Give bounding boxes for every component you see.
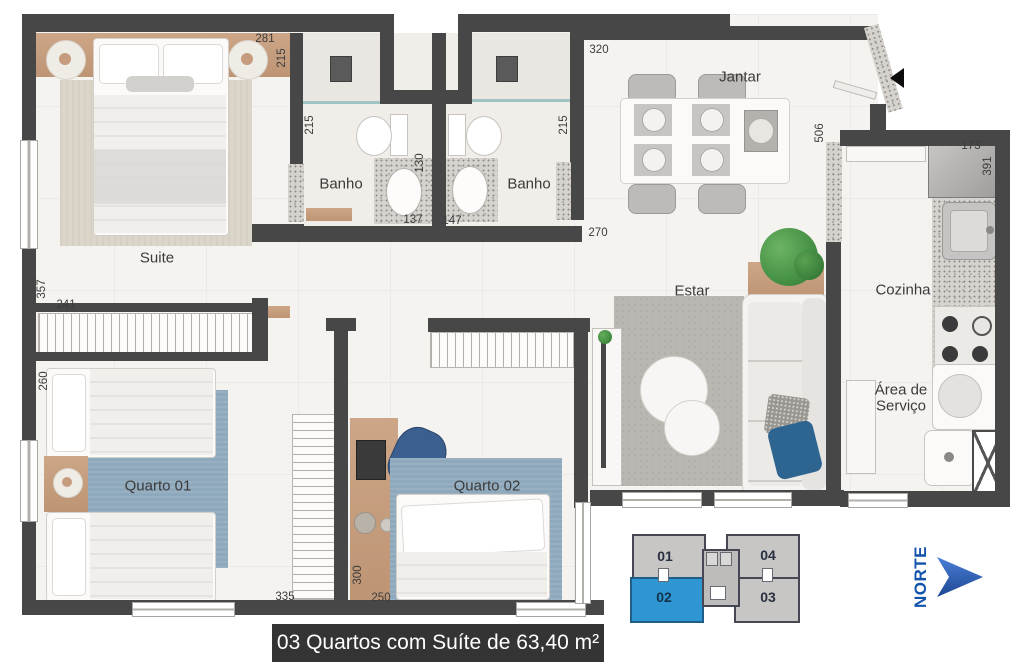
suite-lamp-right-bulb (241, 53, 253, 65)
banho2-sink (452, 166, 488, 214)
north-arrow-icon (933, 551, 987, 603)
label-banho1: Banho (319, 176, 362, 193)
quarto2-pillow (401, 498, 546, 557)
service-cabinet (846, 380, 876, 474)
threshold-banho2-door (556, 162, 571, 220)
keyplan-door-01 (658, 568, 669, 582)
window-quarto1-side (20, 440, 38, 522)
quarto2-desk-item-1 (354, 512, 376, 534)
dim-banho1-side: 215 (304, 115, 316, 134)
dining-chair-3 (628, 184, 676, 214)
dim-banho1-inner: 130 (414, 153, 426, 172)
dim-jantar-top: 320 (589, 44, 608, 56)
north-label: NORTE (911, 546, 931, 608)
quarto2-blanket (397, 552, 547, 597)
burner-1 (942, 316, 958, 332)
window-suite (20, 140, 38, 249)
dim-jantar-side: 506 (814, 123, 826, 142)
label-suite: Suite (140, 250, 174, 267)
window-estar-2 (714, 492, 792, 508)
dim-suite-headboard: 281 (255, 33, 274, 45)
label-estar: Estar (674, 283, 709, 300)
plant-large-leaf (794, 250, 824, 280)
wall-banho2-right (570, 18, 584, 220)
dim-quarto2-bottom: 250 (371, 592, 390, 604)
plate-1 (642, 108, 666, 132)
coffee-table-small (664, 400, 720, 456)
dim-banho1-width: 137 (403, 214, 422, 226)
banho1-toilet-tank (390, 114, 408, 156)
quarto1-bed2-pillow (52, 518, 86, 596)
entrance-arrow-icon (890, 68, 904, 88)
quarto1-lamp-bulb (62, 477, 72, 487)
tank-faucet (944, 452, 954, 462)
banho1-door-leaf (306, 208, 352, 221)
dim-banho2-side: 215 (558, 115, 570, 134)
quarto1-closet (38, 313, 254, 354)
keyplan-elevator-2 (720, 552, 732, 566)
wall-kitchen-left (826, 240, 841, 506)
wall-quarto-split-cap (326, 318, 356, 331)
label-area-servico-1: Área de (875, 382, 928, 399)
wall-top-left (22, 14, 394, 32)
suite-lamp-left-bulb (59, 53, 71, 65)
tv-rack-plant (598, 330, 612, 344)
banho2-toilet-bowl (466, 116, 502, 156)
label-banho2: Banho (507, 176, 550, 193)
wall-suite-right (290, 33, 303, 165)
keyplan-elevator-1 (706, 552, 718, 566)
label-cozinha: Cozinha (875, 282, 930, 299)
floor-plan-canvas: Suite Banho Banho Jantar Cozinha Área de… (0, 0, 1026, 669)
dim-quarto2-desk: 300 (352, 565, 364, 584)
banho2-toilet-tank (448, 114, 466, 156)
wall-closet-right (252, 298, 268, 360)
wall-jantar-top-b (728, 26, 878, 40)
banho2-shower (468, 33, 570, 101)
caption-text: 03 Quartos com Suíte de 63,40 m² (277, 631, 599, 655)
plate-4 (700, 148, 724, 172)
dim-suite-left: 357 (36, 279, 48, 298)
dim-quarto1-bottom: 335 (275, 591, 294, 603)
label-jantar: Jantar (719, 69, 761, 86)
threshold-suite-door (288, 164, 304, 222)
quarto1-bed1-blanket (90, 369, 213, 455)
window-quarto1-bottom (132, 602, 235, 617)
plate-2 (700, 108, 724, 132)
banho2-shower-glass (468, 99, 570, 102)
banho1-toilet-bowl (356, 116, 392, 156)
dim-banho2-width: 147 (442, 215, 461, 227)
keyplan-door-04 (762, 568, 773, 582)
wall-top-mid (458, 14, 582, 32)
wall-jantar-top-a (570, 14, 730, 40)
dim-fridge-width: 173 (961, 140, 980, 152)
window-quarto2-bottom (516, 602, 586, 617)
quarto1-wardrobe (292, 414, 338, 600)
kitchen-halfwall (826, 142, 842, 242)
wall-kitchen-top (840, 130, 1010, 146)
wall-banho-split (432, 33, 446, 229)
quarto1-bed2-blanket (90, 513, 213, 599)
tv-panel (601, 342, 606, 468)
dining-chair-4 (698, 184, 746, 214)
banho1-sink (386, 168, 422, 216)
dim-hall-opening: 270 (588, 227, 607, 239)
keyplan-label-02: 02 (656, 589, 672, 605)
caption-bar: 03 Quartos com Suíte de 63,40 m² (272, 624, 604, 662)
wall-quarto2-top (428, 318, 590, 332)
washing-machine-door (938, 374, 982, 418)
window-service (848, 493, 908, 508)
wall-closet-bottom (28, 352, 268, 361)
kitchen-upper-cabinet (846, 146, 926, 162)
kitchen-faucet (986, 226, 994, 234)
keyplan-label-01: 01 (657, 548, 673, 564)
burner-2 (972, 316, 992, 336)
wall-right-outer (995, 138, 1010, 507)
burner-4 (972, 346, 988, 362)
suite-lumbar-pillow (126, 76, 194, 92)
dim-closet-width: 241 (56, 299, 75, 311)
dim-suite-side: 215 (276, 48, 288, 67)
tv-rack (592, 328, 622, 486)
keyplan-label-03: 03 (760, 589, 776, 605)
plate-3 (642, 148, 666, 172)
quarto2-laptop (356, 440, 386, 480)
window-estar-1 (622, 492, 702, 508)
label-quarto2: Quarto 02 (454, 478, 521, 495)
burner-3 (942, 346, 958, 362)
dim-quarto1-left: 260 (38, 371, 50, 390)
window-quarto2-right (575, 502, 591, 604)
keyplan-stairs (710, 586, 726, 600)
serving-dish (748, 118, 774, 144)
keyplan-label-04: 04 (760, 547, 776, 563)
dim-cozinha-side: 391 (982, 156, 994, 175)
wall-hall-top (252, 226, 582, 242)
banho1-shower-glass (303, 101, 385, 104)
banho1-shower-fixture (330, 56, 352, 82)
outside-top-right (878, 0, 1026, 130)
kitchen-sink-basin (950, 210, 988, 252)
label-area-servico-2: Serviço (876, 398, 926, 415)
wall-quarto2-right (574, 318, 588, 508)
quarto1-bed1-pillow (52, 374, 86, 452)
quarto2-shelf (430, 332, 574, 368)
wall-quarto-split (334, 318, 348, 608)
label-quarto1: Quarto 01 (125, 478, 192, 495)
suite-blanket-fold (94, 150, 226, 204)
wall-left-outer (22, 14, 36, 615)
banho2-shower-fixture (496, 56, 518, 82)
